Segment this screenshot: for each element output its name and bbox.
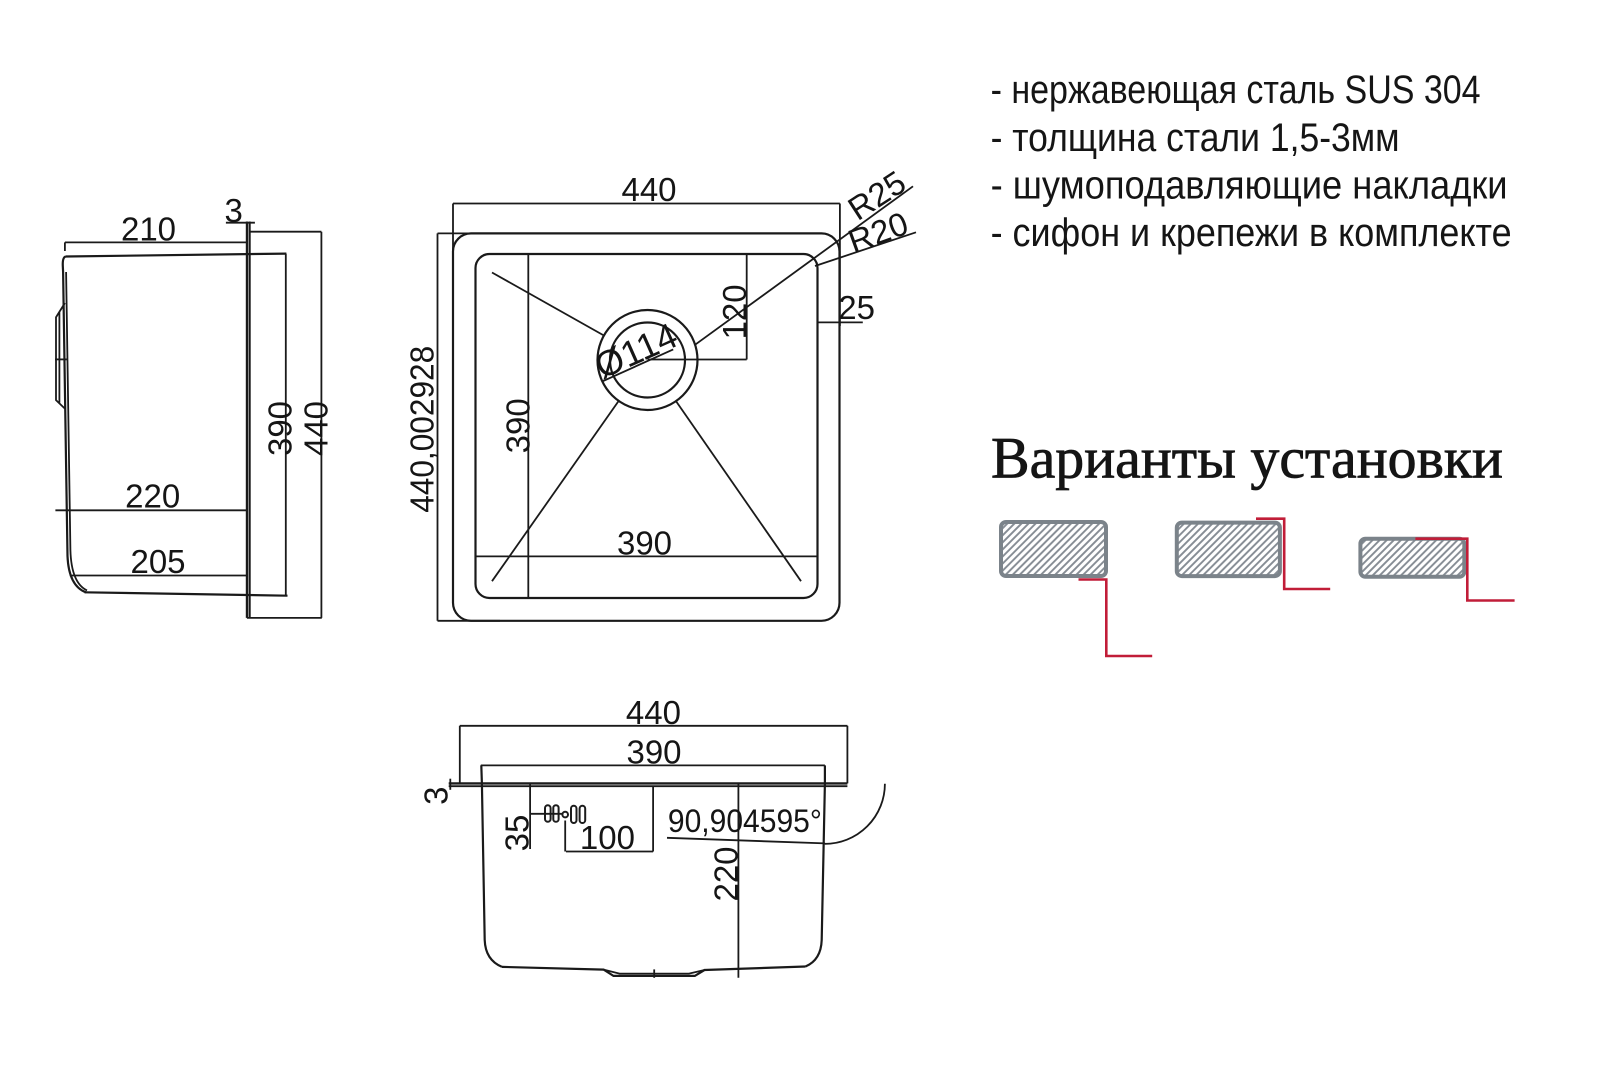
svg-text:220: 220 — [125, 478, 180, 515]
svg-text:- нержавеющая сталь SUS 304: - нержавеющая сталь SUS 304 — [991, 68, 1481, 112]
svg-text:3: 3 — [418, 787, 455, 805]
svg-text:- шумоподавляющие накладки: - шумоподавляющие накладки — [991, 164, 1508, 208]
svg-text:210: 210 — [121, 211, 176, 248]
svg-text:390: 390 — [500, 398, 537, 453]
svg-text:440: 440 — [621, 171, 676, 208]
svg-text:390: 390 — [626, 734, 681, 771]
svg-text:440: 440 — [626, 694, 681, 731]
svg-text:220: 220 — [708, 846, 745, 901]
svg-text:100: 100 — [580, 819, 635, 856]
svg-text:440: 440 — [298, 401, 335, 456]
svg-text:390: 390 — [262, 401, 299, 456]
svg-text:35: 35 — [499, 815, 536, 852]
svg-text:3: 3 — [225, 192, 243, 229]
svg-text:440,002928: 440,002928 — [404, 346, 441, 513]
svg-text:390: 390 — [617, 525, 672, 562]
svg-text:- толщина стали 1,5-3мм: - толщина стали 1,5-3мм — [991, 116, 1400, 160]
svg-text:120: 120 — [716, 284, 753, 339]
svg-text:25: 25 — [838, 289, 875, 326]
svg-text:- сифон и крепежи в комплекте: - сифон и крепежи в комплекте — [991, 211, 1512, 255]
svg-text:90,904595°: 90,904595° — [668, 803, 822, 839]
svg-text:Варианты установки: Варианты установки — [991, 426, 1503, 491]
svg-text:205: 205 — [130, 543, 185, 580]
